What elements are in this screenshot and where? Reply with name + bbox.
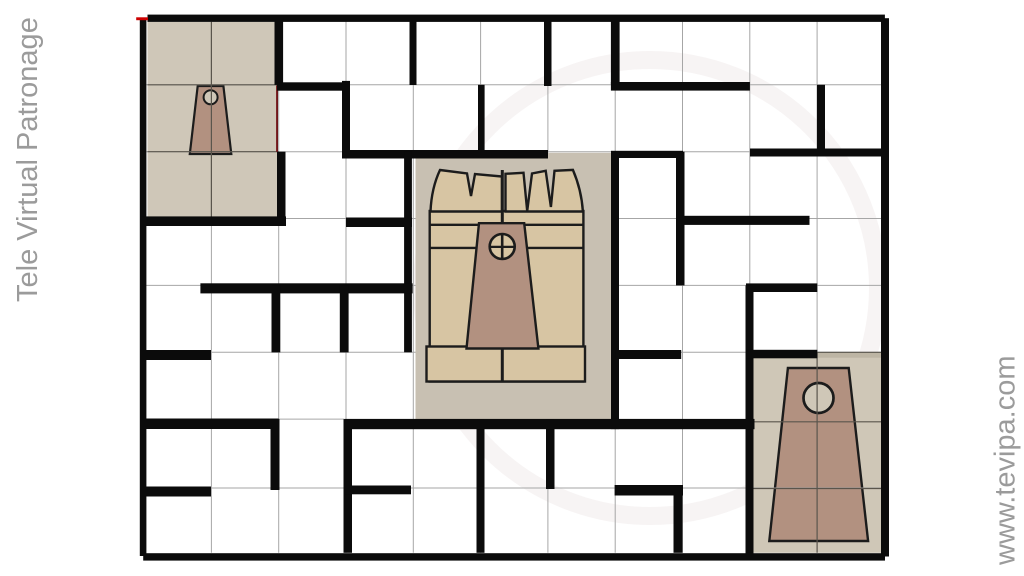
svg-text:www.tevipa.com: www.tevipa.com: [990, 355, 1022, 566]
svg-text:Tele Virtual Patronage: Tele Virtual Patronage: [12, 17, 44, 302]
